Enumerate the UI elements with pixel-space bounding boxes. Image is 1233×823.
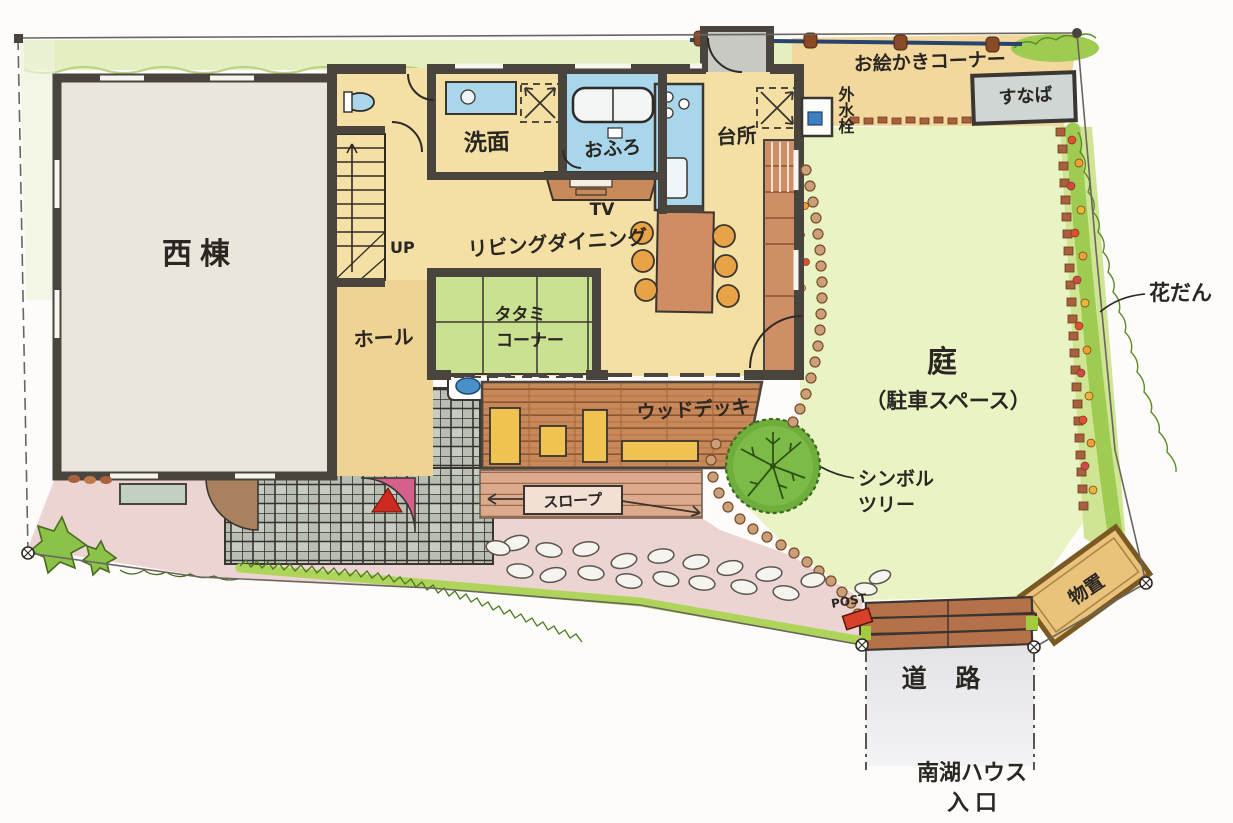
west-hedge xyxy=(20,40,55,300)
label-symbol-tree-2: ツリー xyxy=(858,494,915,516)
label-tv: TV xyxy=(590,200,616,220)
label-bath: おふろ xyxy=(583,136,641,162)
label-west-wing: 西棟 xyxy=(162,237,238,272)
label-garden-2: （駐車スペース） xyxy=(865,389,1030,413)
outdoor-faucet xyxy=(802,98,832,136)
planter xyxy=(120,484,186,504)
label-washroom: 洗面 xyxy=(463,129,510,157)
label-sandbox: すなば xyxy=(998,84,1053,109)
label-entrance-1: 南湖ハウス xyxy=(917,761,1027,786)
symbol-tree xyxy=(726,419,820,513)
washbasin xyxy=(446,82,516,114)
label-outdoor-faucet: 外水栓 xyxy=(836,85,856,135)
label-garden-1: 庭 xyxy=(927,345,957,380)
west-wing xyxy=(57,78,333,476)
toilet xyxy=(344,92,374,112)
dining-table xyxy=(656,212,714,313)
label-slope: スロープ xyxy=(543,490,604,511)
label-up: UP xyxy=(390,238,415,257)
wood-deck xyxy=(482,382,762,468)
label-tatami-2: コーナー xyxy=(496,331,564,351)
site-plan-drawing: 西棟 洗面 おふろ 台所 TV リビングダイニング UP ホール タタミ コーナ… xyxy=(0,0,1233,823)
label-flower-bed: 花だん xyxy=(1149,281,1212,305)
east-storage xyxy=(764,140,796,372)
entrance-steps xyxy=(860,597,1038,650)
floor-plan-svg: 西棟 洗面 おふろ 台所 TV リビングダイニング UP ホール タタミ コーナ… xyxy=(0,0,1233,823)
dining-set xyxy=(631,212,739,313)
hall-floor xyxy=(333,280,433,476)
label-hall: ホール xyxy=(353,324,414,351)
label-entrance-2: 入口 xyxy=(947,791,1003,816)
label-kitchen: 台所 xyxy=(716,123,757,149)
corner-hedge xyxy=(1011,34,1099,62)
label-symbol-tree-1: シンボル xyxy=(858,468,934,490)
back-porch-floor xyxy=(706,32,770,72)
label-tatami-1: タタミ xyxy=(495,305,546,325)
label-road: 道 路 xyxy=(902,664,991,693)
